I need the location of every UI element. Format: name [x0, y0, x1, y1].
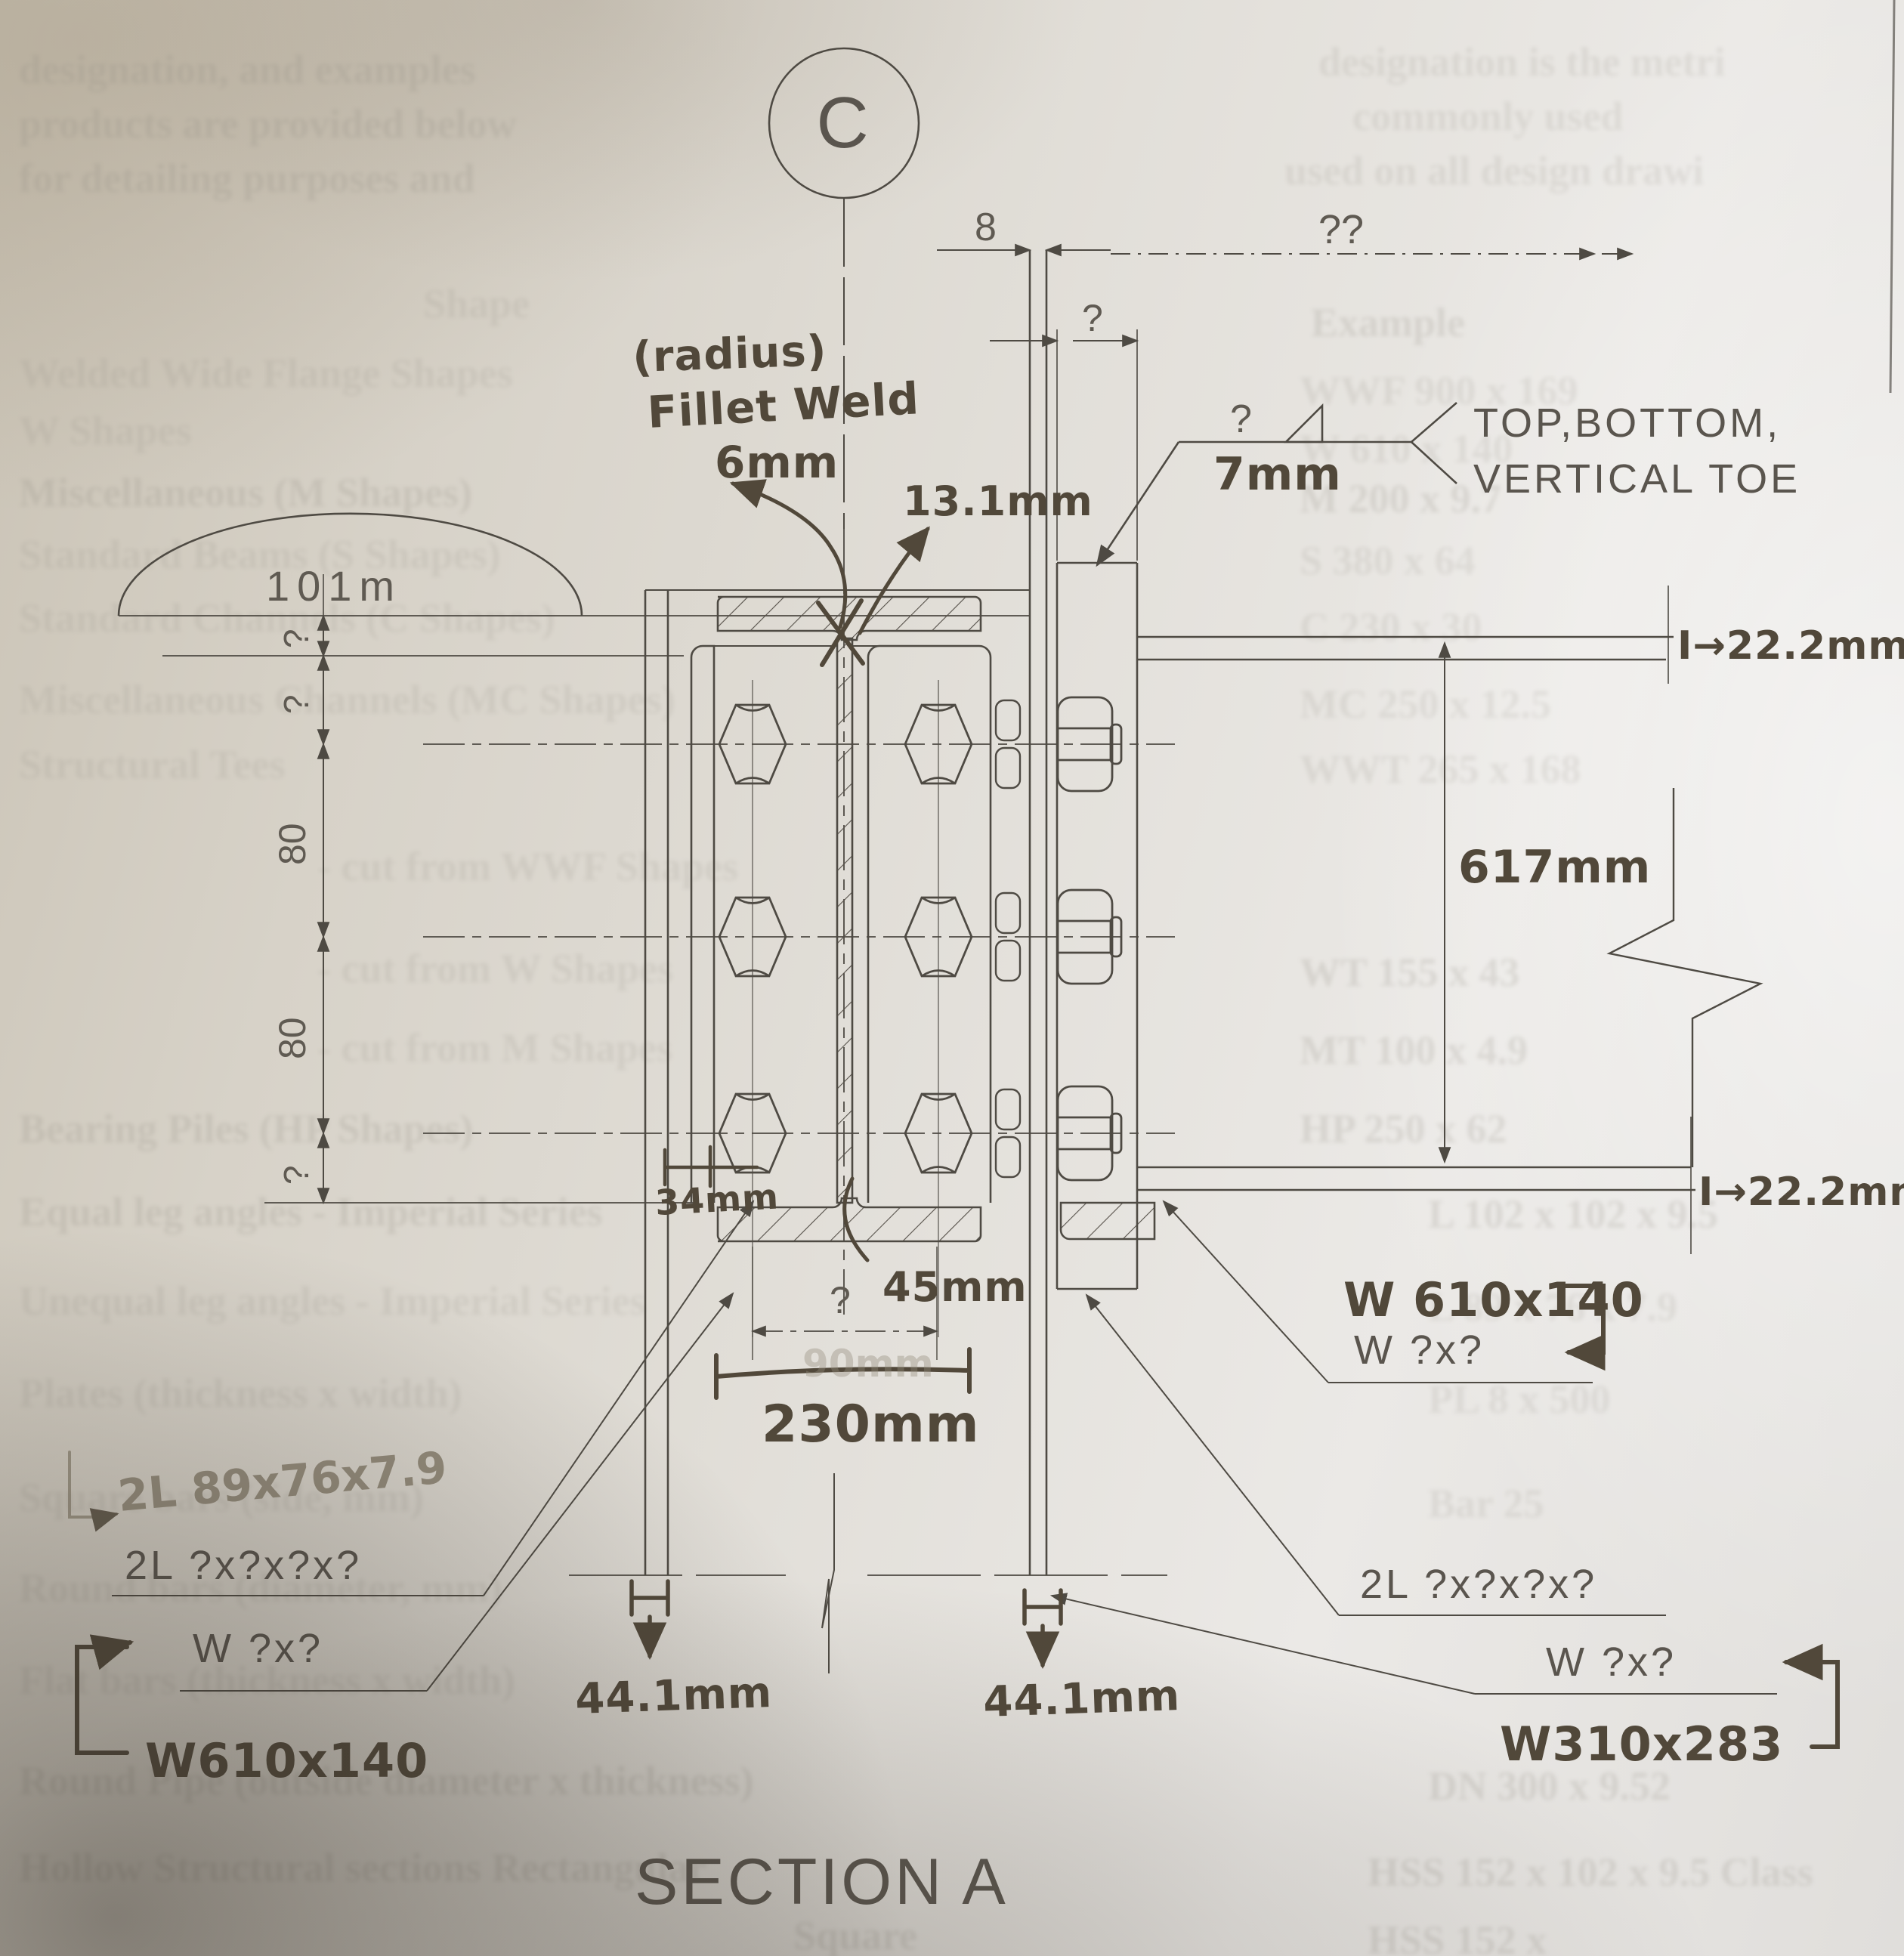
ghost-row: HP 250 x 62 [1300, 1106, 1507, 1151]
hand-hook-column [1786, 1662, 1838, 1747]
chain-gap-4: 80 [271, 1017, 314, 1059]
dim-web-thickness: 13.1mm [903, 477, 1093, 525]
beam-left-answer: W610x140 [145, 1733, 428, 1788]
ghost-paragraph-line: products are provided below [19, 101, 517, 147]
ghost-row: Square [793, 1913, 917, 1956]
label-beam-right-q: W ?x? [1354, 1327, 1485, 1373]
nut [1058, 697, 1121, 1180]
dim-flange-bottom: I→22.2mm [1698, 1170, 1904, 1215]
section-a-drawing: designation, and examples designation is… [0, 0, 1904, 1956]
dim-44-right: 44.1mm [982, 1671, 1181, 1727]
ghost-row: C 230 x 30 [1300, 604, 1482, 650]
bottom-break-line [822, 1473, 834, 1673]
ghost-row: Bar 25 [1428, 1481, 1544, 1526]
label-angles-right-q: 2L ?x?x?x? [1360, 1562, 1597, 1607]
dim-plate-width-q: ? [1082, 297, 1103, 339]
ghost-paragraph-line: for detailing purposes and [19, 156, 475, 201]
ghost-row: Structural Tees [19, 742, 286, 787]
arc-label: 101m [266, 562, 402, 610]
ghost-row: WWT 265 x 168 [1300, 746, 1581, 792]
ghost-row: HSS 152 x 102 x 9.5 Class [1368, 1849, 1813, 1895]
dim-44-left: 44.1mm [574, 1668, 773, 1724]
note-radius: (radius) [632, 326, 827, 382]
ghost-row: Bearing Piles (HP Shapes) [19, 1106, 474, 1151]
chain-gap-1: ? [277, 629, 316, 648]
ghost-row: Miscellaneous (M Shapes) [19, 470, 472, 515]
note-fillet-weld: Fillet Weld [646, 372, 920, 438]
ghost-row: W Shapes [19, 408, 192, 453]
tick-44-right [1025, 1590, 1061, 1665]
dim-45: 45mm [882, 1263, 1028, 1311]
ghost-row: - cut from W Shapes [317, 946, 673, 991]
ghost-row: WT 155 x 43 [1300, 950, 1520, 995]
ghost-row: L 102 x 102 x 9.5 [1428, 1191, 1718, 1237]
fasteners [719, 697, 1121, 1180]
label-angles-left-q: 2L ?x?x?x? [125, 1543, 362, 1588]
ghost-header-shape: Shape [423, 281, 530, 326]
ghost-row: Plates (thickness x width) [19, 1370, 462, 1416]
dim-90-ghost: 90mm [802, 1342, 934, 1386]
ghost-paragraph-line: used on all design drawi [1284, 148, 1704, 193]
ghost-paragraph-line: designation is the metri [1318, 39, 1725, 85]
beam-web-cut [837, 638, 852, 1203]
label-beam-left-q: W ?x? [193, 1626, 323, 1671]
chain-gap-3: 80 [271, 823, 314, 865]
chain-gap-5: ? [277, 1165, 316, 1185]
ghost-paragraph-line: commonly used [1352, 94, 1624, 139]
detail-bubble-letter: C [816, 82, 871, 163]
weld-note-1: TOP,BOTTOM, [1473, 400, 1781, 446]
angle-left-leg [691, 646, 714, 1203]
dim-230: 230mm [762, 1395, 980, 1454]
weld-note-2: VERTICAL TOE [1473, 456, 1800, 502]
ghost-row: Unequal leg angles - Imperial Series [19, 1278, 645, 1324]
washer-stack [996, 700, 1020, 1177]
ghost-row: Hollow Structural sections Rectangular [19, 1845, 706, 1890]
ghost-row: Miscellaneous Channels (MC Shapes) [19, 677, 675, 722]
weld-size-q: ? [1230, 397, 1252, 441]
ghost-row: S 380 x 64 [1300, 538, 1476, 583]
page-edge-line [1890, 0, 1894, 393]
ghost-header-example: Example [1311, 300, 1465, 345]
dim-flange-top: I→22.2mm [1677, 623, 1904, 669]
tick-44-left [632, 1581, 668, 1656]
ghost-row: HSS 152 x [1368, 1917, 1547, 1956]
ghost-paragraph-line: designation, and examples [19, 47, 476, 92]
dim-weld-size: 7mm [1213, 448, 1342, 501]
chain-gap-2: ? [277, 694, 316, 714]
beam-right-answer: W 610x140 [1343, 1272, 1644, 1327]
ghost-row: MC 250 x 12.5 [1300, 681, 1551, 727]
dim-top-gap: 8 [975, 205, 997, 249]
dim-34: 34mm [654, 1176, 780, 1223]
photographed-drawing-page: { "title": { "section_title": "SECTION A… [0, 0, 1904, 1956]
column-answer: W310x283 [1500, 1717, 1783, 1772]
ghost-row: Standard Beams (S Shapes) [19, 532, 501, 577]
angle-right-leg [868, 646, 991, 1203]
note-fillet-size: 6mm [715, 437, 839, 488]
ghost-row: - cut from WWF Shapes [317, 844, 738, 889]
dim-beam-depth: 617mm [1458, 841, 1651, 894]
ghost-row: MT 100 x 4.9 [1300, 1027, 1528, 1073]
ghost-row: - cut from M Shapes [317, 1025, 672, 1071]
angle-right-bottom-leg [1061, 1203, 1154, 1239]
ghost-row: Welded Wide Flange Shapes [19, 351, 513, 396]
dim-gauge-q: ? [830, 1279, 851, 1321]
label-column-q: W ?x? [1546, 1639, 1677, 1685]
ghost-row: Equal leg angles - Imperial Series [19, 1189, 602, 1234]
section-title: SECTION A [635, 1846, 1009, 1918]
dim-top-unknown: ?? [1318, 207, 1364, 252]
